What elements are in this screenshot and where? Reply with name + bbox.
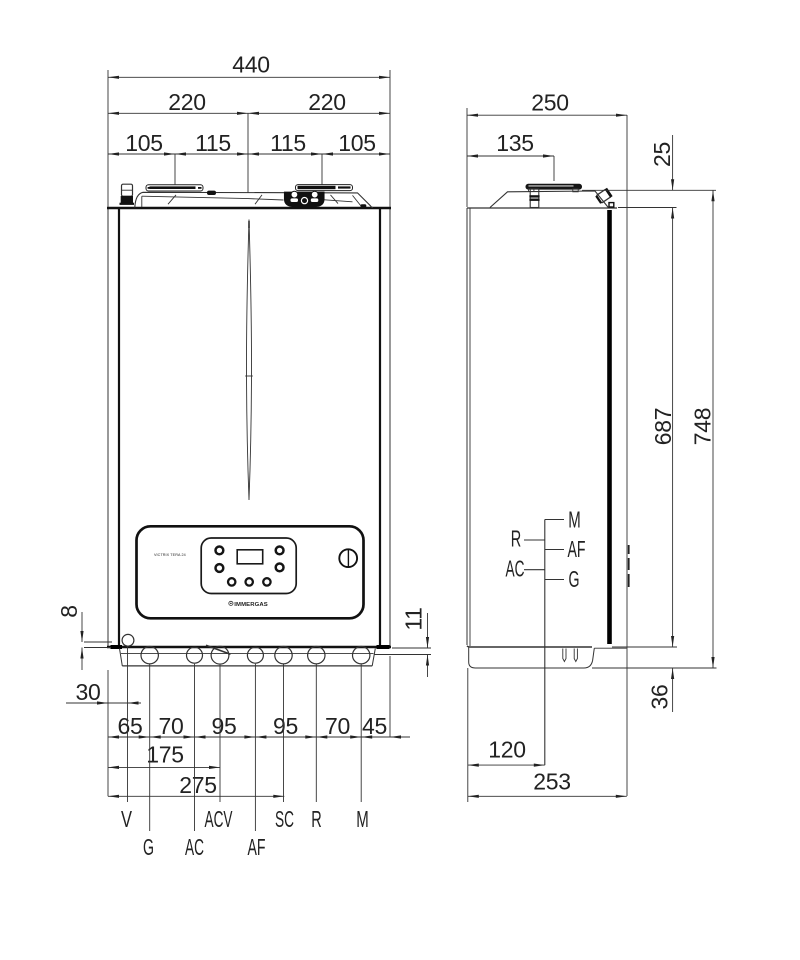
svg-text:135: 135 xyxy=(496,130,533,156)
svg-text:175: 175 xyxy=(146,741,183,767)
svg-text:250: 250 xyxy=(531,89,568,115)
svg-text:30: 30 xyxy=(76,679,101,705)
svg-text:105: 105 xyxy=(125,130,162,156)
svg-text:ACV: ACV xyxy=(205,806,233,832)
svg-text:440: 440 xyxy=(232,52,269,78)
svg-text:AC: AC xyxy=(185,834,204,860)
svg-text:G: G xyxy=(569,566,580,592)
svg-text:105: 105 xyxy=(338,130,375,156)
svg-text:120: 120 xyxy=(488,736,525,762)
svg-text:11: 11 xyxy=(401,607,427,630)
svg-text:M: M xyxy=(568,506,581,532)
svg-text:115: 115 xyxy=(195,130,231,156)
svg-text:AC: AC xyxy=(506,556,525,582)
svg-text:687: 687 xyxy=(650,408,676,445)
svg-text:VICTRIX TERA 24: VICTRIX TERA 24 xyxy=(154,553,186,557)
svg-text:AF: AF xyxy=(248,834,266,860)
svg-text:25: 25 xyxy=(649,142,675,167)
svg-text:95: 95 xyxy=(212,713,237,739)
svg-text:M: M xyxy=(356,806,369,832)
svg-text:70: 70 xyxy=(159,713,184,739)
svg-text:748: 748 xyxy=(690,408,716,445)
svg-text:253: 253 xyxy=(533,768,570,794)
svg-text:SC: SC xyxy=(275,806,294,832)
svg-text:R: R xyxy=(511,526,522,552)
svg-text:V: V xyxy=(121,806,132,832)
svg-text:AF: AF xyxy=(568,536,586,562)
svg-text:220: 220 xyxy=(168,89,205,115)
svg-text:G: G xyxy=(143,834,154,860)
svg-text:45: 45 xyxy=(362,713,387,739)
svg-text:R: R xyxy=(311,806,322,832)
svg-text:36: 36 xyxy=(647,685,673,710)
svg-text:115: 115 xyxy=(270,130,306,156)
svg-text:95: 95 xyxy=(273,713,298,739)
svg-text:275: 275 xyxy=(179,772,216,798)
svg-text:220: 220 xyxy=(308,89,345,115)
svg-text:IMMERGAS: IMMERGAS xyxy=(234,602,268,608)
svg-text:70: 70 xyxy=(325,713,350,739)
svg-text:65: 65 xyxy=(118,713,143,739)
svg-text:8: 8 xyxy=(56,605,82,618)
